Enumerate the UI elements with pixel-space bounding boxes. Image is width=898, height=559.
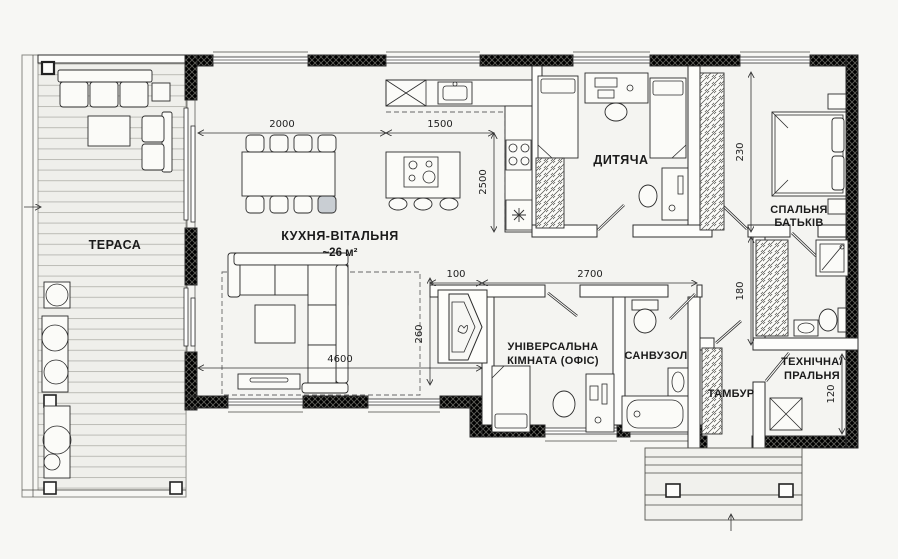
window — [213, 52, 308, 63]
shower — [816, 240, 848, 276]
child-bed-left — [538, 76, 578, 158]
washing-machine — [770, 398, 802, 430]
laundry-label-1: ТЕХНІЧНА/ — [781, 356, 843, 368]
parents-wardrobe — [700, 73, 724, 230]
floor-plan: ТЕРАСА — [0, 0, 898, 559]
dim-living-width: 2000 — [269, 119, 294, 130]
vestibule-label: ТАМБУР — [708, 388, 755, 400]
office-bed — [492, 366, 530, 432]
terrace-side-table — [152, 83, 170, 101]
tv-stand — [238, 374, 300, 389]
kitchen-sink — [438, 82, 472, 104]
terrace-post — [42, 62, 54, 74]
dim-office-bath-width: 2700 — [577, 269, 602, 280]
terrace-sofa — [58, 70, 152, 107]
master-wardrobe — [756, 240, 788, 336]
terrace: ТЕРАСА — [22, 55, 186, 497]
fireplace — [438, 290, 487, 363]
child-bed-right — [650, 78, 686, 158]
terrace-coffee-table — [88, 116, 130, 146]
window — [740, 52, 810, 63]
dim-hall-depth: 180 — [735, 281, 746, 300]
toilet — [632, 300, 658, 333]
coffee-table — [255, 305, 295, 343]
laundry-label-2: ПРАЛЬНЯ — [784, 370, 840, 382]
porch-step — [645, 495, 802, 520]
dim-fireplace-width: 100 — [446, 269, 465, 280]
child-wardrobe — [536, 158, 564, 228]
highlighted-chair — [318, 196, 336, 213]
entry-porch — [645, 448, 802, 531]
dim-living-total-width: 4600 — [327, 354, 352, 365]
kitchen-island — [386, 152, 460, 210]
bathtub — [622, 396, 688, 432]
terrace-post — [44, 395, 56, 407]
terrace-top-wall — [38, 55, 186, 63]
children-label: ДИТЯЧА — [593, 153, 648, 167]
kitchen-living-area: ~26 м² — [322, 247, 357, 259]
bathroom-label: САНВУЗОЛ — [624, 350, 687, 362]
porch-post — [666, 484, 680, 497]
office-label-2: КІМНАТА (ОФІС) — [507, 355, 599, 367]
window — [386, 52, 480, 63]
terrace-label: ТЕРАСА — [89, 238, 142, 252]
terrace-post — [44, 482, 56, 494]
terrace-armchair — [142, 112, 172, 172]
parents-bedroom-label-2: БАТЬКІВ — [774, 217, 823, 229]
dim-laundry-width: 120 — [826, 384, 837, 403]
office-label-1: УНІВЕРСАЛЬНА — [507, 341, 598, 353]
dim-bedroom-depth: 230 — [735, 142, 746, 161]
porch-post — [779, 484, 793, 497]
sink — [668, 368, 688, 396]
kitchen-living-label: КУХНЯ-ВІТАЛЬНЯ — [281, 229, 399, 243]
parents-bedroom-label-1: СПАЛЬНЯ — [770, 204, 828, 216]
master-toilet — [819, 308, 846, 332]
double-bed — [772, 112, 846, 196]
nightstand — [828, 94, 846, 109]
window — [573, 52, 650, 63]
master-sink — [794, 320, 818, 336]
dim-living-depth: 260 — [414, 324, 425, 343]
terrace-post — [170, 482, 182, 494]
dim-kitchen-depth: 2500 — [478, 169, 489, 194]
floor-plan-page: ТЕРАСА — [0, 0, 898, 559]
dim-kitchen-width: 1500 — [427, 119, 452, 130]
nightstand — [828, 199, 846, 214]
